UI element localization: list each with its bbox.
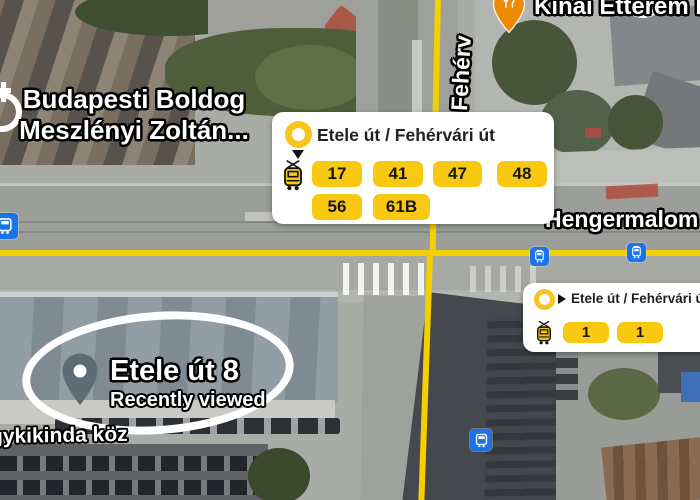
tram-stop-icon[interactable] bbox=[530, 247, 549, 266]
satellite-patch bbox=[556, 352, 578, 400]
route-badge[interactable]: 1 bbox=[563, 322, 609, 343]
satellite-patch bbox=[255, 45, 365, 110]
satellite-patch bbox=[608, 95, 663, 150]
place-label-status: Recently viewed bbox=[110, 389, 266, 412]
road-line-horizontal bbox=[0, 250, 700, 256]
place-label-name[interactable]: Etele út 8 bbox=[110, 355, 239, 388]
restaurant-pin-icon[interactable] bbox=[492, 0, 526, 34]
street-label-nagykikinda: gykikinda köz bbox=[0, 423, 128, 449]
stop-ring-icon bbox=[285, 121, 312, 148]
satellite-patch bbox=[681, 372, 700, 402]
route-badge[interactable]: 47 bbox=[433, 161, 482, 187]
stop-title: Etele út / Fehérvári út bbox=[317, 125, 495, 146]
satellite-patch bbox=[588, 368, 660, 420]
red-bike-crossing bbox=[606, 184, 659, 200]
tram-route-icon bbox=[281, 159, 305, 191]
transit-card-secondary[interactable]: Etele út / Fehérvári út 1 1 bbox=[523, 283, 700, 352]
poi-label-restaurant[interactable]: Kínai Étterem F bbox=[534, 0, 700, 21]
bus-icon bbox=[0, 216, 15, 236]
place-pin-icon[interactable] bbox=[60, 352, 100, 408]
bus-stop-icon[interactable] bbox=[470, 429, 492, 451]
satellite-patch bbox=[601, 437, 700, 500]
poi-label-church-line1: Budapesti Boldog bbox=[8, 84, 260, 115]
route-badge[interactable]: 61B bbox=[373, 194, 430, 220]
tram-route-icon bbox=[535, 320, 553, 345]
poi-label-church-line2: Meszlényi Zoltán... bbox=[8, 115, 260, 146]
route-badge[interactable]: 41 bbox=[373, 161, 423, 187]
bus-icon bbox=[473, 432, 490, 449]
route-badge[interactable]: 17 bbox=[312, 161, 362, 187]
route-badge[interactable]: 48 bbox=[497, 161, 547, 187]
pointer-right-icon bbox=[558, 294, 566, 304]
poi-label-church[interactable]: Budapesti Boldog Meszlényi Zoltán... bbox=[8, 84, 260, 146]
street-label-hengermalom: Hengermalom bbox=[545, 206, 698, 233]
satellite-patch bbox=[0, 456, 260, 471]
stop-title: Etele út / Fehérvári út bbox=[571, 291, 700, 306]
bus-stop-icon[interactable] bbox=[0, 213, 18, 239]
tram-icon bbox=[532, 249, 547, 264]
street-label-fehervari: Fehérv bbox=[446, 35, 477, 112]
tram-stop-icon[interactable] bbox=[627, 243, 646, 262]
transit-card-main[interactable]: Etele út / Fehérvári út 17 41 47 48 56 6… bbox=[272, 112, 554, 224]
stop-ring-icon bbox=[534, 289, 555, 310]
tram-icon bbox=[629, 245, 644, 260]
map-canvas[interactable]: Budapesti Boldog Meszlényi Zoltán... Kín… bbox=[0, 0, 700, 500]
satellite-patch bbox=[248, 448, 310, 500]
satellite-patch bbox=[585, 128, 601, 138]
satellite-patch bbox=[0, 480, 255, 495]
crosswalk bbox=[343, 263, 431, 295]
pointer-down-icon bbox=[292, 150, 304, 159]
route-badge[interactable]: 1 bbox=[617, 322, 663, 343]
route-badge[interactable]: 56 bbox=[312, 194, 362, 220]
